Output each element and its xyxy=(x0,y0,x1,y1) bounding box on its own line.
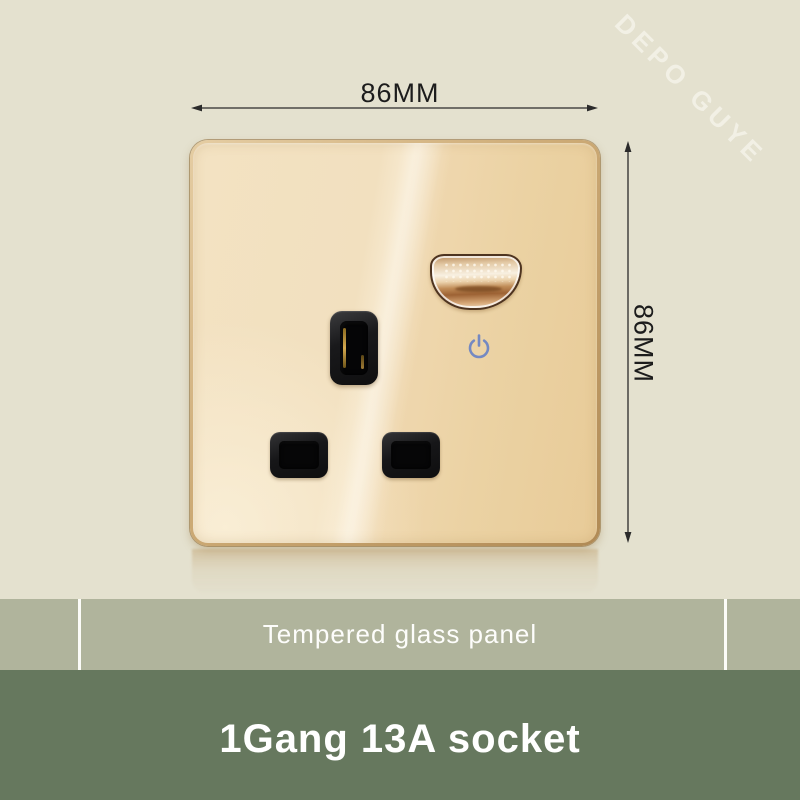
earth-slot-recess xyxy=(340,321,368,375)
arrow-left-icon xyxy=(191,105,202,112)
neutral-slot-recess xyxy=(391,441,431,469)
arrow-down-icon xyxy=(625,532,632,543)
live-pin-slot xyxy=(270,432,328,478)
glass-panel xyxy=(193,143,597,543)
product-title: 1Gang 13A socket xyxy=(219,717,580,762)
height-dimension-label: 86MM xyxy=(632,303,659,385)
arrow-up-icon xyxy=(625,141,632,152)
panel-floor-reflection xyxy=(192,549,598,595)
material-banner: Tempered glass panel xyxy=(0,599,800,670)
glass-reflection xyxy=(193,143,597,543)
arrow-right-icon xyxy=(587,105,598,112)
material-banner-label: Tempered glass panel xyxy=(263,619,537,650)
earth-slot-contact xyxy=(343,328,346,368)
product-image: DEPO GUYE 86MM 86MM xyxy=(0,0,800,800)
width-dimension-label: 86MM xyxy=(310,78,490,109)
live-slot-recess xyxy=(279,441,319,469)
earth-slot-glint xyxy=(361,355,364,369)
banner-divider-left xyxy=(78,599,81,670)
power-icon xyxy=(464,332,494,362)
socket-panel xyxy=(190,140,600,546)
product-footer: 1Gang 13A socket xyxy=(0,670,800,800)
earth-pin-slot xyxy=(330,311,378,385)
neutral-pin-slot xyxy=(382,432,440,478)
badge-reflection-streak xyxy=(455,286,503,293)
banner-divider-right xyxy=(724,599,727,670)
watermark-text: DEPO GUYE xyxy=(587,0,793,192)
badge-texture-dots xyxy=(443,262,512,282)
